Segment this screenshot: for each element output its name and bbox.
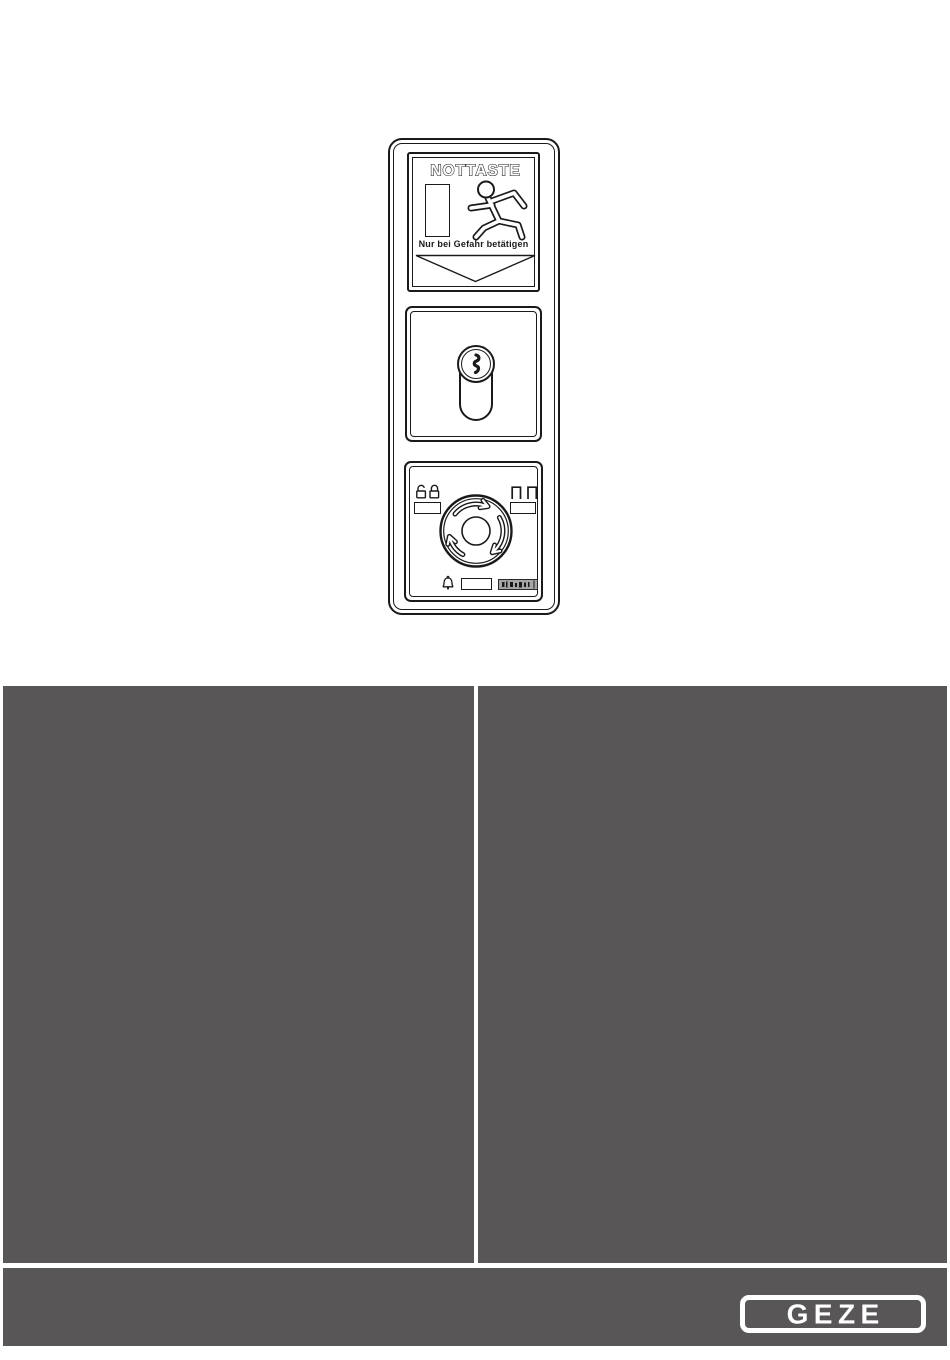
button-window <box>461 578 492 590</box>
emergency-button-module: NOTTASTE Nur bei Gefahr betätigen <box>407 152 540 292</box>
device-illustration: NOTTASTE Nur bei Gefahr betätigen <box>388 138 560 615</box>
down-arrow-icon <box>414 254 537 284</box>
manual-cover-page: NOTTASTE Nur bei Gefahr betätigen <box>0 0 950 1360</box>
nottaste-title: NOTTASTE <box>411 160 540 180</box>
bell-icon <box>442 575 454 590</box>
rotary-control-module <box>404 461 543 602</box>
footer-bar: GEZE <box>3 1268 947 1346</box>
key-cylinder-icon <box>450 338 502 424</box>
column-divider <box>474 686 478 1263</box>
key-switch-module <box>405 306 542 442</box>
label-plate <box>498 579 538 590</box>
warning-text: Nur bei Gefahr betätigen <box>409 239 538 249</box>
door-icon <box>425 184 450 237</box>
nottaste-title-text: NOTTASTE <box>430 163 520 180</box>
rotary-knob-icon <box>434 489 518 573</box>
geze-logo-text: GEZE <box>781 1298 884 1331</box>
geze-logo: GEZE <box>740 1295 926 1333</box>
running-person-icon <box>464 180 534 242</box>
unlock-padlock-icon <box>418 485 424 491</box>
content-panel <box>3 686 947 1263</box>
